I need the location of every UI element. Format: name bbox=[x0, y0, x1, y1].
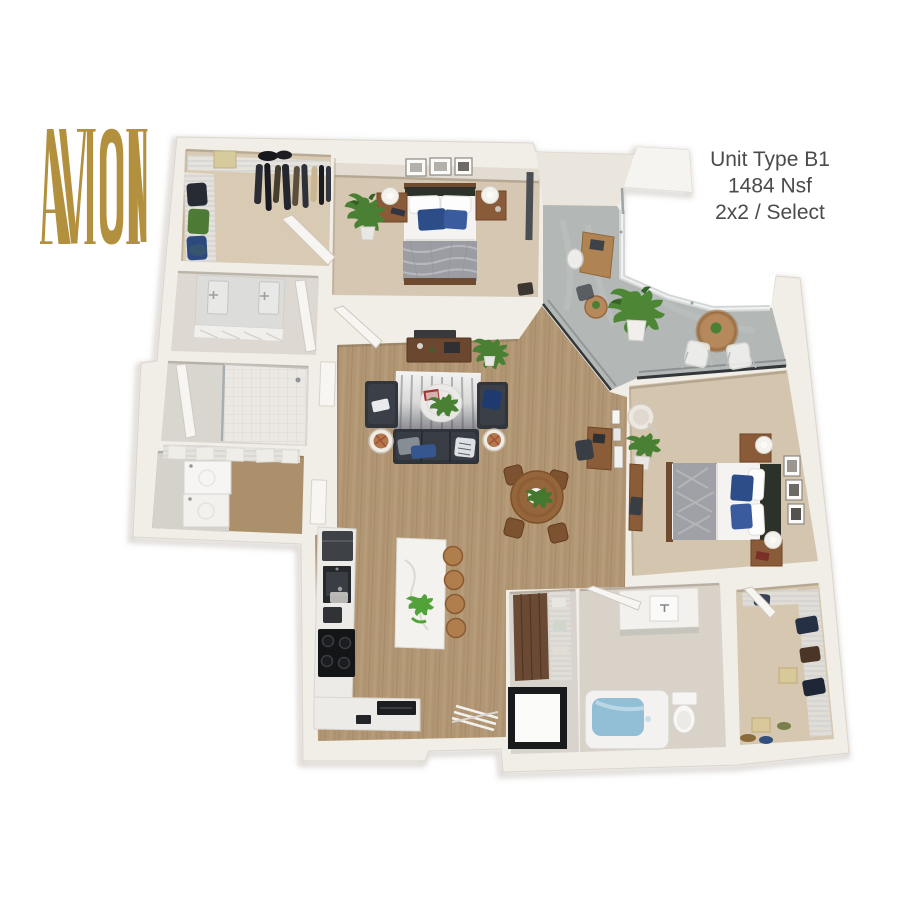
svg-text:Unit Type B1: Unit Type B1 bbox=[710, 148, 830, 171]
svg-text:2x2 / Select: 2x2 / Select bbox=[715, 201, 825, 224]
svg-text:1484 Nsf: 1484 Nsf bbox=[728, 175, 812, 198]
